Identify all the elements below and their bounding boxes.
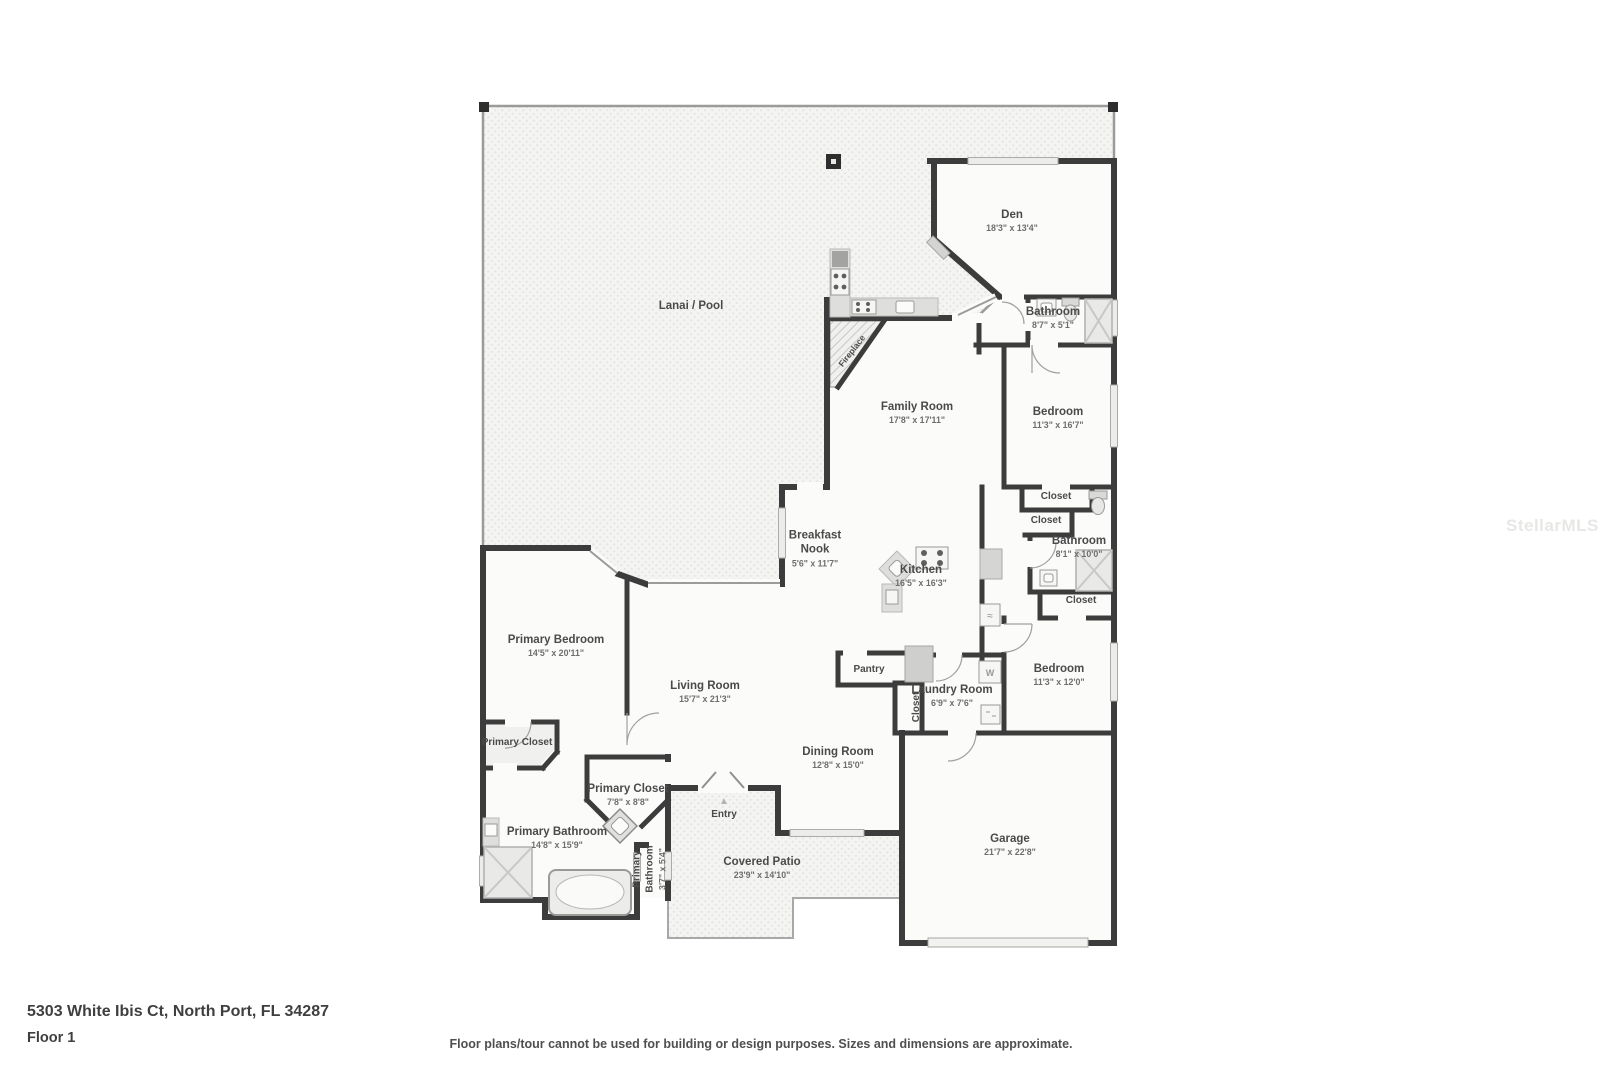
disclaimer-text: Floor plans/tour cannot be used for buil… xyxy=(449,1037,1072,1051)
garage-door xyxy=(928,938,1088,947)
floor-plan-drawing: ≈ W xyxy=(0,0,1600,1066)
stove-icon xyxy=(916,547,948,569)
svg-text:W: W xyxy=(986,668,995,678)
kitchen-island xyxy=(905,646,933,682)
fridge-icon xyxy=(980,549,1002,579)
dryer-icon xyxy=(981,705,1000,724)
watermark: StellarMLS xyxy=(1506,516,1599,536)
floor-plan-page: ≈ W xyxy=(0,0,1600,1066)
primary-closet-floor xyxy=(486,725,554,765)
svg-text:≈: ≈ xyxy=(987,611,993,622)
floor-label: Floor 1 xyxy=(27,1030,75,1046)
address-text: 5303 White Ibis Ct, North Port, FL 34287 xyxy=(27,1003,329,1021)
bathtub-icon xyxy=(549,870,631,915)
